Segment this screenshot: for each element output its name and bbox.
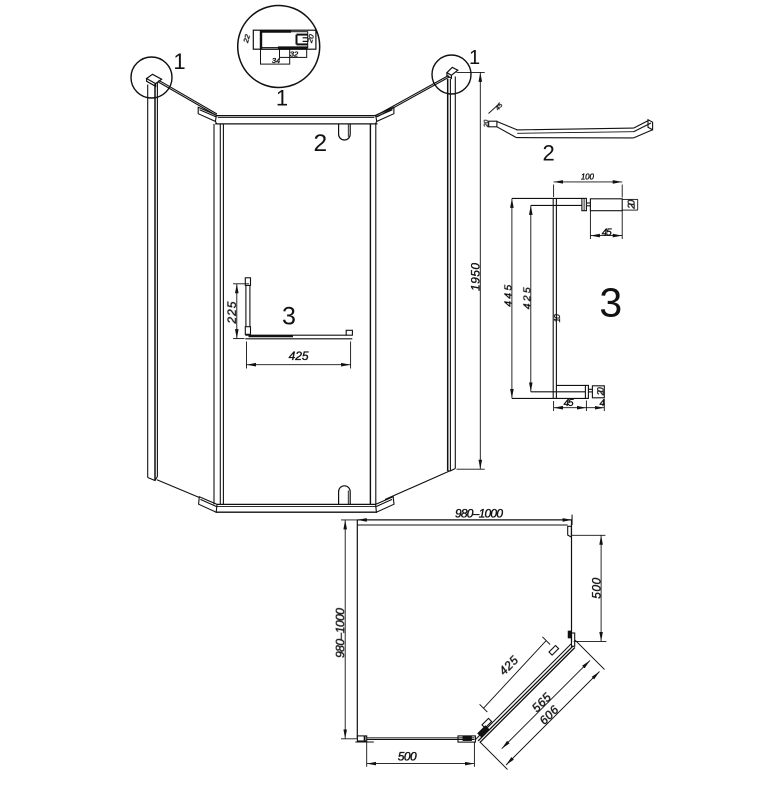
svg-text:2: 2 (542, 140, 554, 165)
svg-text:1: 1 (276, 85, 288, 110)
svg-text:4: 4 (600, 398, 606, 409)
svg-text:445: 445 (502, 285, 514, 307)
svg-text:20: 20 (595, 387, 605, 396)
svg-text:425: 425 (289, 349, 309, 363)
svg-text:32: 32 (290, 49, 299, 58)
svg-text:34: 34 (272, 56, 280, 65)
svg-text:20: 20 (626, 199, 637, 209)
svg-text:1950: 1950 (469, 263, 483, 291)
svg-text:3: 3 (282, 302, 296, 330)
svg-text:225: 225 (225, 301, 239, 324)
svg-text:1: 1 (469, 47, 480, 69)
svg-text:1: 1 (173, 49, 185, 74)
svg-text:100: 100 (581, 172, 595, 181)
svg-text:2: 2 (313, 130, 327, 157)
svg-text:45: 45 (602, 227, 612, 238)
svg-text:500: 500 (398, 749, 417, 763)
svg-text:3: 3 (599, 280, 622, 326)
svg-text:20: 20 (483, 120, 490, 129)
svg-text:10: 10 (553, 314, 562, 323)
svg-text:45: 45 (564, 398, 574, 409)
svg-text:500: 500 (589, 577, 603, 598)
svg-text:980–1000: 980–1000 (333, 608, 347, 658)
svg-text:425: 425 (521, 287, 533, 309)
svg-text:980–1000: 980–1000 (455, 506, 503, 520)
